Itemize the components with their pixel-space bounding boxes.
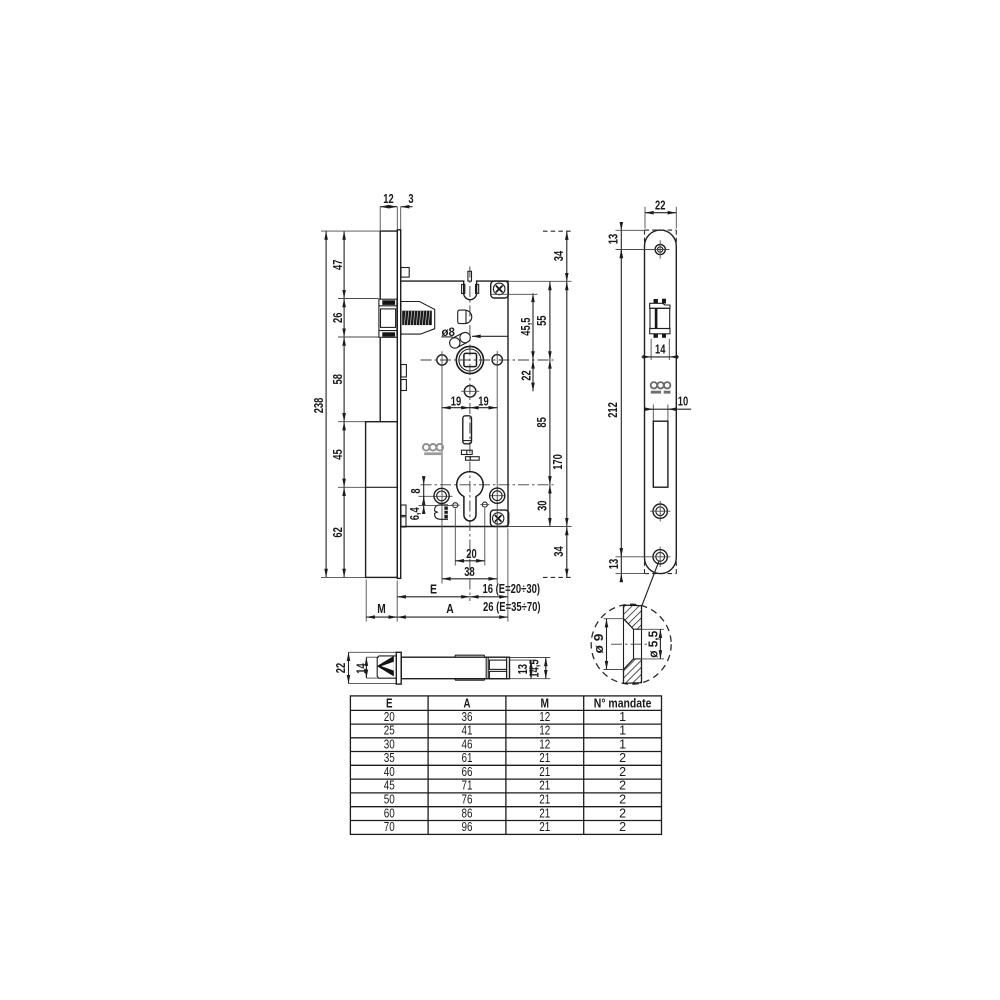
svg-text:2: 2	[619, 820, 626, 834]
svg-text:2: 2	[619, 765, 626, 779]
svg-text:45: 45	[331, 449, 345, 459]
svg-text:ø 5,5: ø 5,5	[646, 631, 660, 658]
svg-text:22: 22	[334, 663, 348, 673]
svg-text:19: 19	[478, 394, 488, 408]
svg-text:85: 85	[535, 417, 549, 427]
svg-text:E: E	[430, 583, 437, 597]
svg-text:170: 170	[551, 454, 565, 470]
svg-text:1: 1	[619, 710, 626, 724]
svg-text:8: 8	[409, 488, 423, 493]
svg-text:2: 2	[619, 806, 626, 820]
svg-text:238: 238	[312, 398, 326, 414]
svg-text:45,5: 45,5	[519, 317, 533, 335]
svg-text:21: 21	[539, 765, 550, 779]
svg-text:50: 50	[384, 793, 395, 807]
svg-text:45: 45	[384, 779, 395, 793]
svg-text:22: 22	[655, 198, 665, 212]
svg-text:14: 14	[355, 663, 369, 673]
svg-text:34: 34	[552, 251, 566, 261]
svg-text:14,5: 14,5	[528, 659, 542, 677]
svg-text:21: 21	[539, 806, 550, 820]
svg-text:M: M	[377, 602, 386, 616]
svg-text:30: 30	[535, 500, 549, 510]
svg-text:12: 12	[383, 192, 393, 206]
svg-text:26: 26	[331, 313, 345, 323]
svg-text:30: 30	[384, 737, 395, 751]
svg-text:46: 46	[462, 737, 473, 751]
svg-text:1: 1	[619, 724, 626, 738]
svg-text:A: A	[464, 695, 471, 710]
svg-text:1: 1	[619, 737, 626, 751]
svg-text:47: 47	[331, 260, 345, 270]
svg-text:71: 71	[462, 779, 473, 793]
svg-text:34: 34	[552, 546, 566, 556]
svg-text:A: A	[446, 602, 454, 616]
svg-text:66: 66	[462, 765, 473, 779]
svg-text:21: 21	[539, 779, 550, 793]
svg-text:38: 38	[464, 565, 474, 579]
svg-text:60: 60	[384, 806, 395, 820]
svg-text:96: 96	[462, 820, 473, 834]
svg-text:6,4: 6,4	[408, 507, 422, 520]
svg-text:58: 58	[331, 374, 345, 384]
svg-text:26 (E=35÷70): 26 (E=35÷70)	[483, 600, 541, 614]
svg-text:20: 20	[466, 547, 476, 561]
svg-text:21: 21	[539, 820, 550, 834]
svg-text:62: 62	[331, 527, 345, 537]
svg-text:20: 20	[384, 710, 395, 724]
svg-text:2: 2	[619, 793, 626, 807]
svg-text:12: 12	[539, 724, 550, 738]
svg-text:61: 61	[462, 751, 473, 765]
svg-text:36: 36	[462, 710, 473, 724]
svg-text:212: 212	[606, 402, 620, 418]
svg-text:3: 3	[408, 192, 413, 206]
svg-text:M: M	[541, 695, 550, 710]
svg-text:14: 14	[655, 343, 665, 357]
svg-text:86: 86	[462, 806, 473, 820]
svg-text:ø 9: ø 9	[592, 633, 606, 653]
svg-text:55: 55	[535, 315, 549, 325]
svg-text:2: 2	[619, 751, 626, 765]
svg-text:21: 21	[539, 751, 550, 765]
svg-text:70: 70	[384, 820, 395, 834]
svg-text:2: 2	[619, 779, 626, 793]
svg-text:21: 21	[539, 793, 550, 807]
svg-text:16 (E=20÷30): 16 (E=20÷30)	[483, 582, 541, 596]
svg-text:25: 25	[384, 724, 395, 738]
svg-text:10: 10	[678, 395, 688, 409]
svg-text:35: 35	[384, 751, 395, 765]
svg-text:40: 40	[384, 765, 395, 779]
svg-text:76: 76	[462, 793, 473, 807]
svg-text:E: E	[386, 695, 393, 710]
svg-text:13: 13	[607, 559, 621, 569]
svg-text:13: 13	[607, 234, 621, 244]
svg-text:12: 12	[539, 710, 550, 724]
svg-text:12: 12	[539, 737, 550, 751]
svg-text:22: 22	[519, 370, 533, 380]
svg-text:N° mandate: N° mandate	[594, 695, 652, 710]
svg-text:19: 19	[451, 394, 461, 408]
svg-text:41: 41	[462, 724, 473, 738]
